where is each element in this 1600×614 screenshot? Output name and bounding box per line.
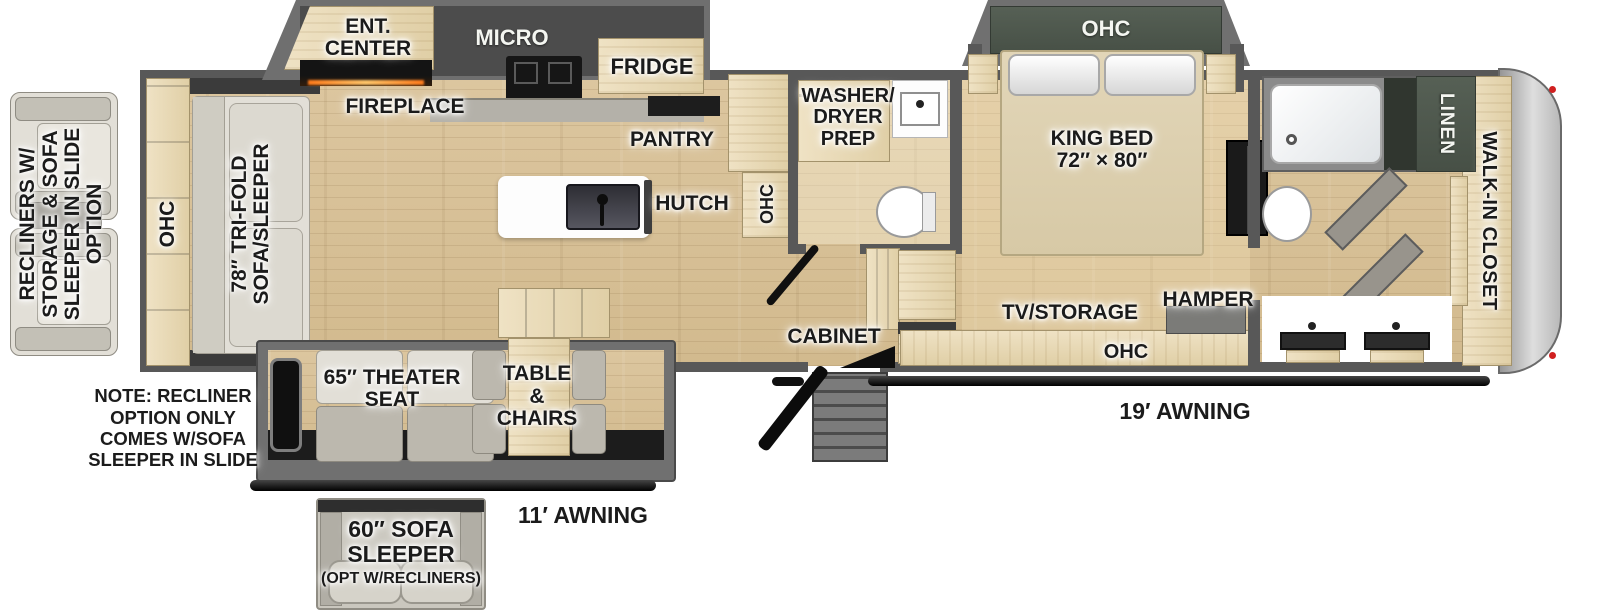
vanity-faucet [1392, 322, 1400, 330]
pantry-label: PANTRY [608, 127, 736, 153]
entry-cabinet-upper [898, 250, 956, 320]
rear-ohc-label: OHC [153, 179, 183, 269]
kitchen-ohc-label: OHC [756, 169, 780, 239]
sofa-option-label: 60″ SOFA SLEEPER [326, 515, 476, 569]
sofa-option-sub-label: (OPT W/RECLINERS) [316, 568, 486, 590]
burner-grate [514, 62, 538, 84]
theater-seat-label: 65″ THEATER SEAT [302, 362, 482, 416]
linen-label: LINEN [1434, 79, 1458, 169]
vanity-sink-base [1370, 350, 1424, 363]
vanity-faucet [1308, 322, 1316, 330]
ent-center-label: ENT. CENTER [298, 12, 438, 64]
hamper-label: HAMPER [1148, 287, 1268, 313]
shower-pan [1270, 84, 1382, 164]
midbath-wall-bottom-a [788, 244, 806, 254]
trifold-sofa-label: 78″ TRI-FOLD SOFA/SLEEPER [223, 104, 279, 344]
shower-drain [1286, 134, 1297, 145]
option-recliners-label: RECLINERS W/ STORAGE & SOFA SLEEPER IN S… [8, 89, 116, 359]
bedroom-steps [866, 248, 900, 330]
pillow [1104, 54, 1196, 96]
island-faucet-stem [600, 204, 604, 226]
midbath-wall-right [950, 72, 962, 254]
micro-label: MICRO [452, 24, 572, 52]
closet-column [1450, 176, 1468, 306]
vanity-sink-base [1286, 350, 1340, 363]
slide-window [270, 358, 302, 452]
washer-dryer-label: WASHER/ DRYER PREP [773, 84, 923, 152]
awning-rod-11ft [250, 480, 656, 491]
toilet-front [1262, 186, 1312, 242]
fireplace-label: FIREPLACE [330, 94, 480, 120]
vanity-sink [1280, 332, 1346, 350]
awning-rod-19ft [868, 376, 1490, 386]
tv-storage-label: TV/STORAGE [995, 300, 1145, 326]
cabinet-label: CABINET [772, 324, 896, 350]
king-bed-label: KING BED 72″ × 80″ [1022, 124, 1182, 176]
awning-11-label: 11′ AWNING [500, 500, 666, 530]
burner-grate [548, 62, 572, 84]
shower-dark-corner [1384, 78, 1416, 170]
table-chairs-label: TABLE & CHAIRS [478, 355, 596, 439]
walk-in-closet-label: WALK-IN CLOSET [1473, 101, 1503, 341]
marker-light [1549, 86, 1556, 93]
frontbath-wall [1248, 72, 1260, 248]
recliner-note-label: NOTE: RECLINER OPTION ONLY COMES W/SOFA … [77, 384, 269, 472]
toilet-tank [922, 192, 936, 232]
sofa-back [193, 97, 225, 353]
awning-19-label: 19′ AWNING [1095, 396, 1275, 426]
grab-handle [772, 377, 804, 386]
hutch-label: HUTCH [640, 191, 744, 217]
pillow [1008, 54, 1100, 96]
rv-floorplan: RECLINERS W/ STORAGE & SOFA SLEEPER IN S… [0, 0, 1600, 614]
nightstand [968, 54, 998, 94]
fridge-label: FRIDGE [600, 54, 704, 80]
marker-light [1549, 352, 1556, 359]
vanity-sink [1364, 332, 1430, 350]
bedroom-ohc-label: OHC [1046, 14, 1166, 44]
dinette-hutch [498, 288, 610, 338]
fridge-vent [648, 96, 720, 116]
nightstand [1206, 54, 1236, 94]
lower-ohc-label: OHC [1076, 340, 1176, 366]
option-sofa-top [318, 500, 484, 512]
fireplace-flames [308, 80, 424, 85]
